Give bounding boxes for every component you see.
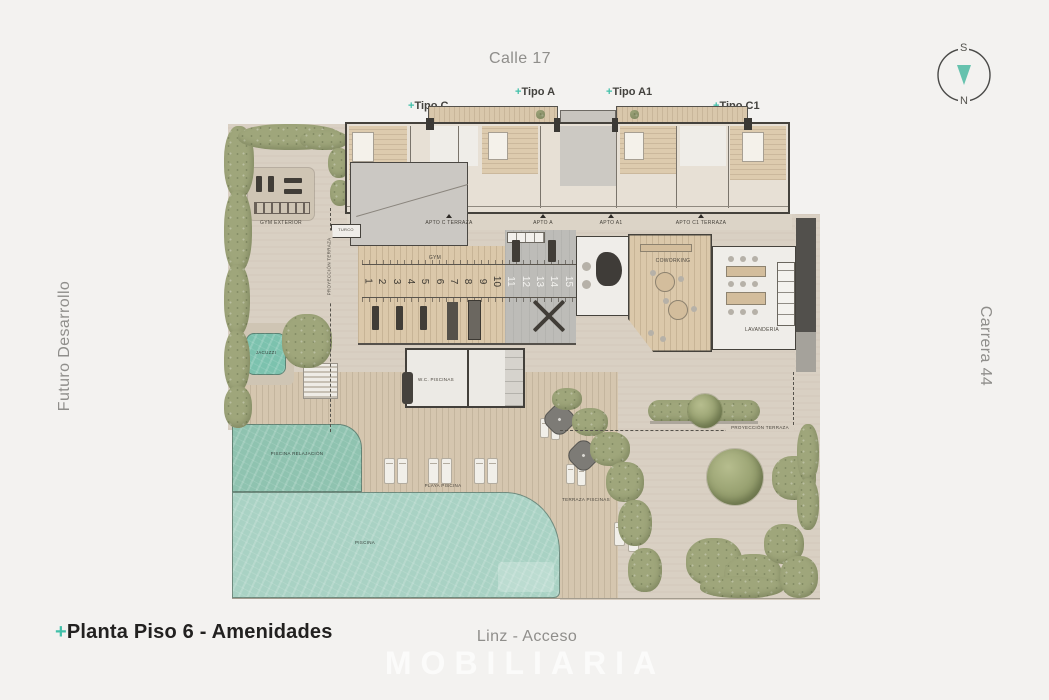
hedge: [224, 330, 250, 392]
hedge: [300, 130, 348, 150]
dark-lounger: [402, 372, 413, 404]
bed: [352, 132, 374, 162]
bush: [700, 576, 784, 598]
gym-exterior-label: GYM EXTERIOR: [244, 221, 318, 227]
apartment-room: [430, 126, 478, 166]
lounger: [474, 458, 485, 484]
apto-c-terraza-label: APTO C TERRAZA: [419, 220, 479, 226]
chair: [650, 270, 656, 276]
hedge: [224, 190, 252, 272]
chair: [752, 309, 758, 315]
gym-exterior-equipment-icon: [284, 178, 302, 183]
wall: [540, 126, 541, 208]
armchair: [582, 280, 591, 289]
chair: [740, 281, 746, 287]
access-label-linz: Linz - Acceso: [447, 628, 607, 646]
lounger: [397, 458, 408, 484]
pool-bench: [498, 562, 554, 592]
pool-wc-label: W.C. PISCINAS: [407, 378, 465, 383]
gym-equipment-icon: [372, 306, 379, 330]
stair-core: [350, 162, 468, 246]
chair: [648, 330, 654, 336]
planter: [630, 110, 639, 119]
page-title: +Planta Piso 6 - Amenidades: [55, 621, 333, 644]
bush: [590, 432, 630, 466]
projection-terrace-label-right: PROYECCIÓN TERRAZA: [726, 426, 794, 431]
gym-mat: [447, 302, 458, 340]
coworking-label: COWORKING: [648, 259, 698, 265]
compass-south-label: S: [958, 42, 969, 54]
piano-icon: [596, 252, 622, 286]
unit-type-a1: +Tipo A1: [606, 86, 652, 98]
lounger: [428, 458, 439, 484]
gym-exterior-equipment-icon: [256, 176, 262, 192]
bush: [797, 478, 819, 530]
chair: [752, 256, 758, 262]
bush: [552, 388, 582, 410]
service-shaft: [796, 218, 816, 332]
floorplan-page: Calle 17 Futuro Desarrollo Carrera 44 Li…: [0, 0, 1049, 700]
chair: [660, 336, 666, 342]
gym-equipment-icon: [420, 306, 427, 330]
chair: [691, 306, 697, 312]
relaxation-pool-label: PISCINA RELAJACIÓN: [247, 452, 347, 457]
coworking-counter: [640, 244, 692, 252]
street-label-futuro-desarrollo: Futuro Desarrollo: [56, 266, 74, 426]
apartment-room: [680, 126, 726, 166]
bed: [488, 132, 508, 160]
stair-lobby: [560, 126, 616, 186]
tree: [282, 314, 332, 368]
bush: [618, 500, 652, 546]
laundry-table: [726, 292, 766, 305]
tree: [688, 394, 722, 428]
wall: [676, 126, 677, 208]
wall-pier: [426, 118, 434, 130]
jacuzzi-label: JACUZZI: [246, 351, 286, 356]
bush: [606, 462, 644, 502]
bed: [624, 132, 644, 160]
projection-terrace-label-left: PROYECCIÓN TERRAZA: [328, 230, 333, 302]
planter: [536, 110, 545, 119]
chair: [740, 256, 746, 262]
chair: [728, 281, 734, 287]
pergola: [303, 363, 338, 399]
street-label-carrera-44: Carrera 44: [976, 286, 994, 406]
gym-equipment-icon: [396, 306, 403, 330]
turco-label: TURCO: [331, 228, 361, 232]
laundry-table: [726, 266, 766, 277]
chair: [728, 256, 734, 262]
wall: [728, 126, 729, 208]
bush: [797, 424, 819, 482]
apto-c1-terraza-label: APTO C1 TERRAZA: [671, 220, 731, 226]
lounger: [384, 458, 395, 484]
gym-equipment-icon: [548, 240, 556, 262]
title-plus-icon: +: [55, 621, 67, 643]
bush: [628, 548, 662, 592]
relaxation-pool: [232, 424, 362, 492]
pool-beach-label: PLAYA PISCINA: [400, 484, 486, 489]
bush: [780, 556, 818, 598]
chair: [678, 276, 684, 282]
plan-edge: [232, 598, 820, 599]
chair: [740, 309, 746, 315]
utility-room: [505, 350, 523, 406]
unit-type-a: +Tipo A: [515, 86, 555, 98]
watermark: MOBILIARIA: [370, 645, 680, 682]
street-label-calle-17: Calle 17: [455, 50, 585, 68]
coworking-table: [655, 272, 675, 292]
wall-pier: [612, 118, 618, 132]
chair: [752, 281, 758, 287]
lounger: [566, 464, 575, 484]
pool-terrace-label: TERRAZA PISCINAS: [556, 498, 616, 503]
gym-exterior-rack-icon: [254, 202, 310, 214]
hedge: [224, 386, 252, 428]
coworking-table: [668, 300, 688, 320]
lounger: [487, 458, 498, 484]
gym-south-wall: [358, 343, 576, 345]
gym-exterior-equipment-icon: [268, 176, 274, 192]
laundry-label: LAVANDERIA: [736, 328, 788, 334]
armchair: [582, 262, 591, 271]
hedge: [224, 264, 250, 336]
washing-machines: [777, 262, 795, 326]
gym-stall-numbers: 123456789101112131415: [362, 264, 576, 298]
apto-a1-label: APTO A1: [591, 220, 631, 226]
lounger: [441, 458, 452, 484]
treadmill-icon: [468, 300, 481, 340]
chair: [728, 309, 734, 315]
wall: [616, 126, 617, 208]
compass-north-label: N: [958, 95, 970, 107]
projection-line-right: [793, 372, 795, 430]
chair: [663, 298, 669, 304]
service-block: [796, 332, 816, 372]
main-pool-label: PISCINA: [340, 541, 390, 546]
compass-needle-icon: [957, 65, 971, 85]
tree: [707, 449, 763, 505]
bed: [742, 132, 764, 162]
wall-pier: [554, 118, 560, 132]
wall: [467, 350, 469, 406]
compass: S N: [930, 41, 998, 109]
gym-equipment-icon: [512, 240, 520, 262]
apto-a-label: APTO A: [523, 220, 563, 226]
wall-pier: [744, 118, 752, 130]
gym-exterior-equipment-icon: [284, 189, 302, 194]
